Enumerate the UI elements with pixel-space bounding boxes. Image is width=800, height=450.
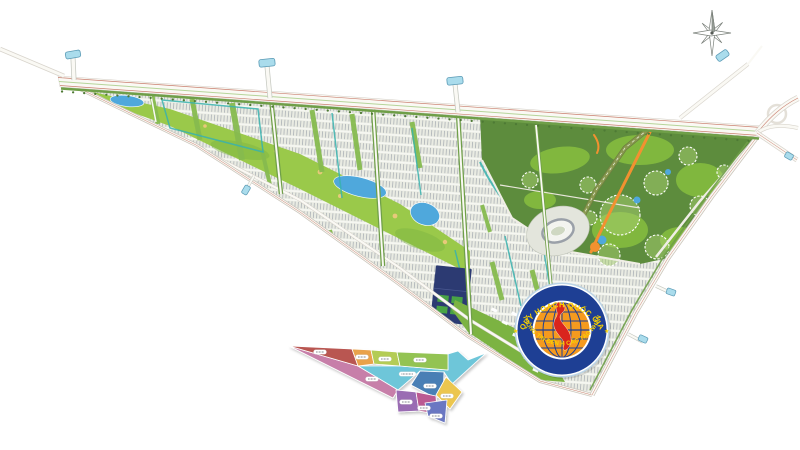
edge-stub-1: [656, 286, 676, 296]
zone-label-pill: [366, 377, 379, 382]
zone-label-pill: [314, 350, 327, 355]
edge-stub-2: [628, 334, 648, 344]
overpass-1: [65, 50, 81, 80]
west-access-road: [0, 49, 64, 76]
zone-label-pill: [399, 372, 416, 377]
zone-label-pill: [356, 355, 369, 360]
bridge-cap-compass-road: [715, 49, 730, 62]
compass-rose-icon: [691, 10, 732, 56]
main-map: [0, 49, 762, 395]
inset-zone-11: [425, 400, 447, 423]
zone-label-pill: [400, 400, 413, 405]
zone-label-pill: [414, 358, 427, 363]
zone-label-pill: [424, 384, 437, 389]
master-plan-map-image: QUY HOẠCH QUỐC GIA THÔNG TIN ĐẾN H CÁC T…: [0, 0, 800, 450]
master-plan-page: QUY HOẠCH QUỐC GIA THÔNG TIN ĐẾN H CÁC T…: [0, 0, 800, 450]
logo-star-right: ★: [604, 328, 609, 335]
zone-label-pill: [430, 414, 443, 419]
zone-label-pill: [418, 406, 431, 411]
zone-label-pill: [441, 394, 454, 399]
logo-star-left: ★: [513, 328, 518, 335]
zoning-inset-map: [289, 346, 486, 423]
zone-label-pill: [379, 357, 392, 362]
